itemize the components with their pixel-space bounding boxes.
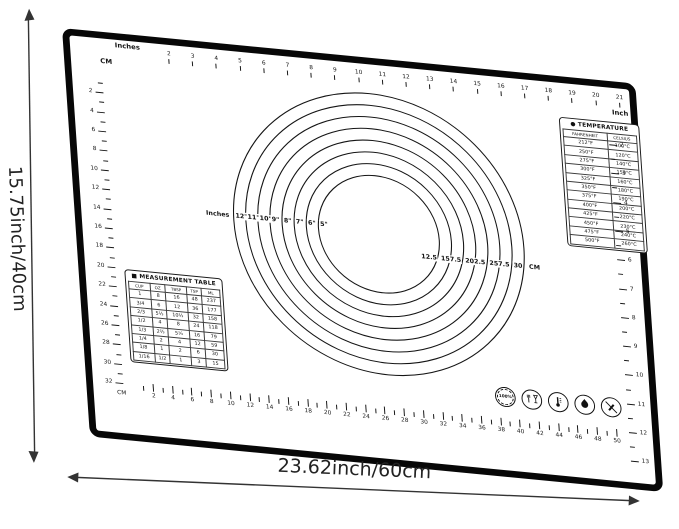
bottom-ruler-tick (413, 412, 414, 417)
circle-inches-prefix-label: Inches (206, 210, 230, 219)
top-ruler-tick (453, 87, 454, 92)
left-ruler-number: 28 (98, 339, 110, 346)
table-cell: 1/16 (133, 351, 155, 362)
left-ruler-tick (105, 228, 113, 230)
bottom-ruler-tick (317, 403, 318, 408)
bottom-ruler-tick (587, 429, 588, 434)
left-ruler-tick (111, 276, 116, 277)
left-ruler-tick (99, 102, 104, 103)
right-ruler-tick (622, 331, 627, 332)
bottom-ruler-number: 24 (360, 414, 373, 421)
pastry-mat: Inches CM Inch CM 12"3011"27.510"259"22.… (62, 28, 663, 492)
bottom-ruler-tick (471, 418, 472, 423)
left-ruler-tick (116, 354, 121, 355)
right-ruler-tick (625, 375, 633, 377)
top-ruler-tick (239, 66, 240, 71)
no-knife-icon-glyph (601, 396, 621, 418)
bottom-ruler-tick (384, 407, 386, 415)
top-ruler-tick (334, 75, 335, 80)
rolling-circle (314, 170, 443, 299)
right-ruler-number: 5 (626, 229, 638, 236)
right-ruler-number: 9 (634, 344, 646, 351)
product-image: Inches CM Inch CM 12"3011"27.510"259"22.… (0, 0, 679, 529)
bottom-ruler-tick (210, 390, 212, 398)
bottom-ruler-number: 36 (476, 425, 489, 432)
top-ruler-tick (571, 98, 572, 103)
left-ruler-number: 32 (101, 378, 113, 385)
circle-inch-label: 9" (272, 216, 280, 224)
bottom-ruler-tick (336, 405, 337, 410)
left-ruler-tick (97, 111, 105, 113)
top-ruler-tick (311, 73, 312, 78)
right-ruler-tick (628, 418, 633, 419)
bottom-ruler-tick (423, 410, 425, 418)
left-ruler-tick (115, 334, 120, 335)
bottom-ruler-tick (278, 399, 279, 404)
bottom-ruler-tick (326, 401, 328, 409)
left-ruler-tick (115, 383, 123, 385)
circle-inch-label: 10" (259, 215, 272, 223)
left-ruler-tick (108, 266, 116, 268)
right-ruler-tick (620, 303, 625, 304)
top-ruler-number: 16 (495, 83, 507, 90)
bottom-ruler-tick (616, 429, 618, 437)
left-ruler-tick (114, 363, 122, 365)
left-ruler-number: 2 (81, 88, 93, 95)
table-cell: 15 (206, 358, 225, 369)
bottom-ruler-tick (491, 420, 492, 425)
right-ruler-tick (631, 461, 639, 463)
bottom-ruler-tick (259, 397, 260, 402)
bottom-ruler-tick (346, 403, 348, 411)
top-ruler-number: 9 (329, 67, 341, 74)
bottom-ruler-tick (268, 395, 270, 403)
right-ruler-number: 4 (624, 200, 636, 207)
right-ruler-tick (623, 346, 631, 348)
circle-inch-label: 6" (308, 220, 316, 228)
bottom-ruler-number: 12 (244, 402, 257, 409)
top-ruler-tick (595, 100, 596, 105)
bottom-ruler-tick (153, 384, 155, 392)
top-ruler-number: 13 (424, 76, 436, 83)
top-ruler-number: 2 (163, 51, 175, 58)
left-ruler-number: 8 (85, 146, 97, 153)
left-ruler-number: 30 (99, 359, 111, 366)
top-ruler-number: 10 (353, 69, 365, 76)
concentric-circles: 12"3011"27.510"259"22.58"207"17.56"155"1… (192, 65, 566, 413)
left-ruler-tick (98, 82, 103, 83)
top-ruler-tick (192, 61, 193, 66)
seal-dashed-ring: 100% (496, 388, 514, 406)
top-ruler-number: 5 (234, 58, 246, 65)
top-ruler-tick (477, 89, 478, 94)
bottom-ruler-tick (191, 388, 193, 396)
top-ruler-number: 4 (210, 56, 222, 63)
top-ruler-number: 19 (566, 90, 578, 97)
bottom-ruler-tick (162, 388, 163, 393)
flame-resistant-icon-glyph (575, 394, 595, 416)
left-ruler-tick (104, 179, 109, 180)
left-ruler-tick (101, 169, 109, 171)
table-cell: 1/2 (154, 353, 170, 363)
bottom-ruler-number: 40 (514, 429, 527, 436)
top-ruler-number: 15 (471, 81, 483, 88)
bottom-ruler-tick (365, 405, 367, 413)
circle-inch-label: 12" (235, 213, 248, 221)
left-ruler-tick (108, 237, 113, 238)
bottom-ruler-number: 38 (495, 427, 508, 434)
left-ruler-tick (114, 315, 119, 316)
bottom-ruler-tick (230, 392, 232, 400)
bottom-ruler-tick (577, 425, 579, 433)
bottom-ruler-number: 34 (456, 423, 469, 430)
right-ruler-number: 6 (628, 258, 640, 265)
top-ruler-number: 11 (376, 72, 388, 79)
right-ruler-number: 8 (632, 315, 644, 322)
bottom-ruler-tick (355, 407, 356, 412)
left-ruler-tick (106, 247, 114, 249)
left-ruler-tick (109, 286, 117, 288)
left-ruler-tick (96, 92, 104, 94)
bottom-ruler-tick (452, 416, 453, 421)
circle-cm-label: 25 (489, 260, 498, 268)
left-ruler-number: 16 (90, 223, 102, 230)
top-ruler-tick (524, 94, 525, 99)
top-ruler-number: 18 (542, 88, 554, 95)
bottom-ruler-number: 48 (591, 436, 604, 443)
left-ruler-number: 24 (95, 301, 107, 308)
height-dimension-annotation: 15.75inch/40cm (0, 5, 60, 467)
left-ruler-number: 20 (93, 262, 105, 269)
bottom-ruler-tick (307, 399, 309, 407)
left-ruler-number: 14 (89, 204, 101, 211)
left-ruler-unit-label: CM (100, 57, 112, 66)
bottom-ruler-tick (481, 416, 483, 424)
right-ruler-tick (621, 317, 629, 319)
bottom-ruler-tick (529, 423, 530, 428)
top-ruler-number: 12 (400, 74, 412, 81)
circle-inch-label: 5" (320, 221, 328, 229)
bottom-ruler-tick (433, 414, 434, 419)
top-ruler-tick (500, 91, 501, 96)
circle-inch-label: 8" (284, 217, 292, 225)
left-ruler-tick (107, 218, 112, 219)
bottom-ruler-tick (568, 427, 569, 432)
top-ruler-number: 3 (187, 53, 199, 60)
rolling-circle (289, 144, 469, 324)
top-ruler-tick (263, 68, 264, 73)
bottom-ruler-number: 20 (321, 410, 334, 417)
right-ruler-tick (619, 288, 627, 290)
top-ruler-tick (358, 77, 359, 82)
bottom-ruler-number: 44 (553, 432, 566, 439)
flame-resistant-icon (574, 394, 596, 416)
top-ruler-tick (287, 71, 288, 76)
top-ruler-number: 20 (590, 92, 602, 99)
right-ruler-tick (627, 403, 635, 405)
left-ruler-tick (110, 257, 115, 258)
right-ruler-tick (624, 360, 629, 361)
left-ruler-tick (110, 305, 118, 307)
bottom-ruler-number: 22 (340, 412, 353, 419)
bottom-ruler-tick (240, 395, 241, 400)
bottom-ruler-number: 26 (379, 415, 392, 422)
right-ruler-number: 12 (640, 430, 652, 437)
bottom-ruler-tick (143, 386, 144, 391)
bottom-ruler-number: 32 (437, 421, 450, 428)
right-ruler-number: 10 (636, 373, 648, 380)
bottom-ruler-tick (298, 401, 299, 406)
bottom-ruler-number: 14 (263, 404, 276, 411)
bottom-ruler-number: 16 (282, 406, 295, 413)
arrow-down-icon (29, 451, 39, 463)
rolling-circle (224, 80, 533, 389)
right-ruler-tick (626, 389, 631, 390)
bottom-ruler-number: 8 (205, 399, 218, 406)
bottom-ruler-tick (461, 414, 463, 422)
bottom-ruler-tick (539, 421, 541, 429)
bottom-ruler-tick (519, 420, 521, 428)
bottom-ruler-tick (500, 418, 502, 426)
left-ruler-number: 12 (87, 184, 99, 191)
left-ruler-tick (98, 131, 106, 133)
bottom-ruler-tick (288, 397, 290, 405)
top-ruler-unit-label: Inches (115, 42, 141, 52)
left-ruler-tick (118, 373, 123, 374)
temperature-resistant-icon-glyph (548, 391, 568, 413)
bottom-ruler-tick (558, 423, 560, 431)
bottom-ruler-unit-label: CM (117, 389, 127, 397)
temperature-resistant-icon (547, 391, 569, 413)
bottom-ruler-tick (201, 392, 202, 397)
left-ruler-tick (104, 208, 112, 210)
arrow-right-icon (629, 496, 640, 506)
left-ruler-tick (103, 160, 108, 161)
right-ruler-number: 2 (620, 142, 632, 149)
circle-cm-label: 15 (441, 255, 450, 263)
bottom-ruler-number: 28 (398, 417, 411, 424)
top-ruler-number: 17 (519, 85, 531, 92)
left-ruler-number: 6 (83, 126, 95, 133)
bottom-ruler-number: 18 (302, 408, 315, 415)
arrow-left-icon (67, 472, 78, 482)
right-ruler-tick (617, 259, 625, 261)
bottom-ruler-tick (172, 386, 174, 394)
circle-inch-label: 11" (247, 214, 260, 222)
food-safe-icon (521, 389, 543, 411)
seal-percent-label: 100% (499, 394, 512, 400)
bottom-ruler-tick (394, 410, 395, 415)
circle-inch-label: 7" (296, 218, 304, 226)
table-cell: 3 (191, 357, 207, 367)
left-ruler-number: 10 (86, 165, 98, 172)
bottom-ruler-tick (606, 431, 607, 436)
bottom-ruler-number: 4 (167, 395, 180, 402)
left-ruler-number: 18 (91, 243, 103, 250)
top-ruler-tick (168, 59, 169, 64)
top-ruler-tick (619, 103, 620, 108)
top-ruler-tick (429, 84, 430, 89)
rolling-circle (237, 92, 521, 376)
left-ruler-number: 4 (82, 107, 94, 114)
bottom-ruler-number: 46 (572, 434, 585, 441)
left-ruler-tick (106, 199, 111, 200)
top-ruler-tick (405, 82, 406, 87)
bottom-ruler-tick (549, 425, 550, 430)
right-ruler-unit-label: Inch (612, 109, 629, 118)
right-ruler-tick (629, 432, 637, 434)
measurement-table: ■ MEASUREMENT TABLECUPOZTBSPTSPML1816482… (124, 269, 228, 372)
bottom-ruler-number: 30 (418, 419, 431, 426)
right-ruler-tick (618, 274, 623, 275)
100-percent-seal-icon: 100% (494, 386, 516, 408)
right-ruler-number: 3 (622, 171, 634, 178)
left-ruler-tick (100, 150, 108, 152)
food-safe-icon-glyph (522, 389, 542, 411)
top-ruler-number: 21 (613, 95, 625, 102)
circle-cm-label: 20 (465, 258, 475, 266)
no-knife-icon (600, 396, 622, 418)
bottom-ruler-number: 2 (147, 393, 160, 400)
bottom-ruler-tick (510, 422, 511, 427)
rolling-circle (250, 105, 508, 363)
top-ruler-number: 7 (281, 62, 293, 69)
left-ruler-tick (102, 141, 107, 142)
arrow-up-icon (24, 9, 34, 21)
left-ruler-number: 22 (94, 281, 106, 288)
bottom-ruler-number: 42 (533, 430, 546, 437)
left-ruler-number: 26 (97, 320, 109, 327)
top-ruler-number: 6 (258, 60, 270, 67)
bottom-ruler-tick (597, 427, 599, 435)
top-ruler-number: 14 (447, 79, 459, 86)
right-ruler-tick (630, 447, 635, 448)
table-cell: 1 (170, 355, 192, 366)
circle-cm-suffix-label: CM (529, 264, 540, 272)
top-ruler-number: 8 (305, 65, 317, 72)
bottom-ruler-number: 6 (186, 397, 199, 404)
circle-cm-label: 12.5 (421, 253, 437, 261)
bottom-ruler-number: 10 (225, 400, 238, 407)
bottom-ruler-tick (182, 390, 183, 395)
left-ruler-tick (102, 189, 110, 191)
left-ruler-tick (101, 121, 106, 122)
bottom-ruler-tick (220, 393, 221, 398)
left-ruler-tick (112, 296, 117, 297)
bottom-ruler-tick (375, 408, 376, 413)
top-ruler-tick (216, 64, 217, 69)
top-ruler-tick (548, 96, 549, 101)
right-ruler-number: 13 (642, 459, 654, 466)
left-ruler-tick (113, 344, 121, 346)
bottom-ruler-tick (249, 393, 251, 401)
bottom-ruler-tick (442, 412, 444, 420)
bottom-ruler-tick (404, 408, 406, 416)
left-ruler-tick (111, 324, 119, 326)
circle-cm-label: 30 (513, 262, 523, 270)
bottom-ruler-number: 50 (611, 438, 624, 445)
right-ruler-number: 7 (630, 286, 642, 293)
conversion-table: CUPOZTBSPTSPML1816482373/4612361772/35⅓1… (128, 281, 226, 370)
right-ruler-number: 11 (638, 402, 650, 409)
top-ruler-tick (382, 80, 383, 85)
